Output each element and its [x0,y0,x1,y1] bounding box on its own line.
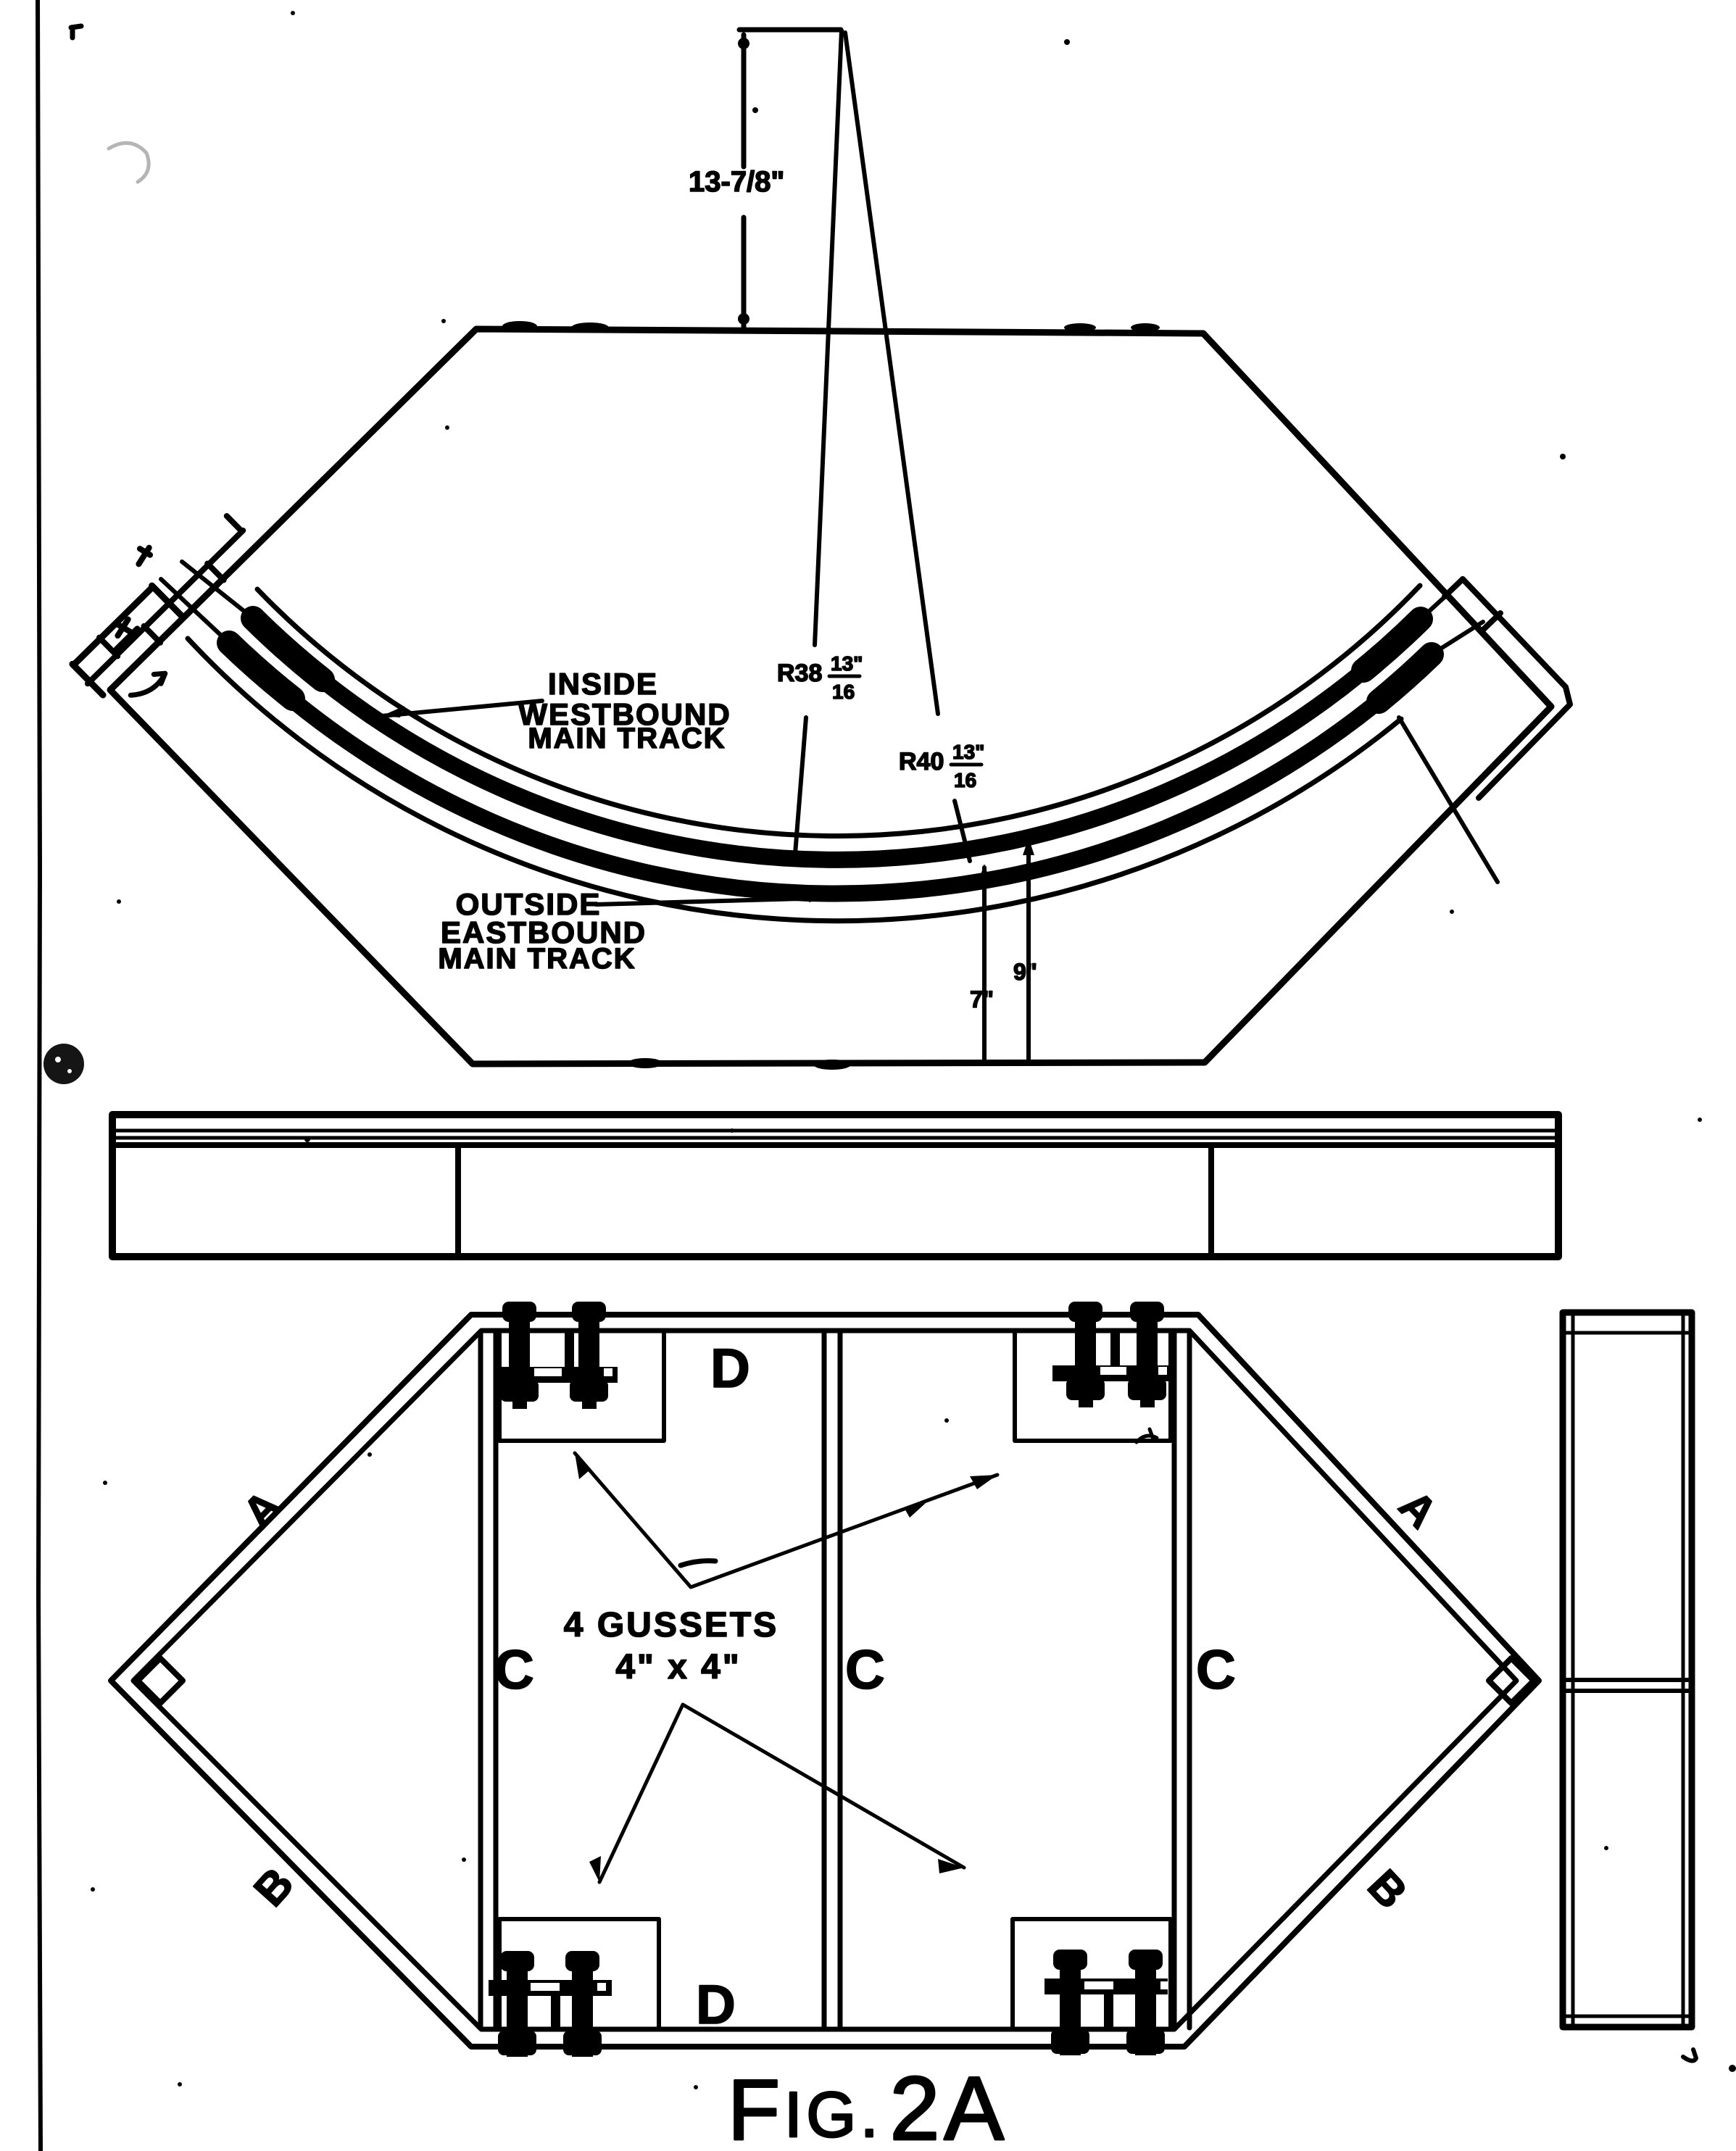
svg-text:MAIN TRACK: MAIN TRACK [528,723,726,754]
svg-text:MAIN TRACK: MAIN TRACK [438,943,636,975]
svg-text:13": 13" [952,741,984,763]
svg-text:9": 9" [1013,959,1037,985]
svg-text:C: C [494,1639,534,1701]
svg-text:D: D [710,1338,750,1399]
svg-text:16: 16 [954,769,976,791]
svg-text:C: C [1196,1639,1236,1701]
svg-text:7": 7" [970,986,994,1012]
svg-text:INSIDE: INSIDE [548,667,658,701]
svg-text:16: 16 [832,681,855,703]
svg-text:B: B [1358,1860,1416,1918]
svg-text:4 GUSSETS: 4 GUSSETS [564,1606,778,1644]
svg-text:D: D [696,1974,736,2036]
svg-text:FIG.2A: FIG.2A [728,2059,1008,2151]
svg-text:13": 13" [831,652,863,675]
svg-text:R38: R38 [777,660,822,687]
svg-text:4" x 4": 4" x 4" [615,1648,741,1686]
svg-text:13-7/8": 13-7/8" [689,166,784,198]
svg-text:C: C [845,1639,885,1701]
svg-text:R40: R40 [899,748,944,775]
